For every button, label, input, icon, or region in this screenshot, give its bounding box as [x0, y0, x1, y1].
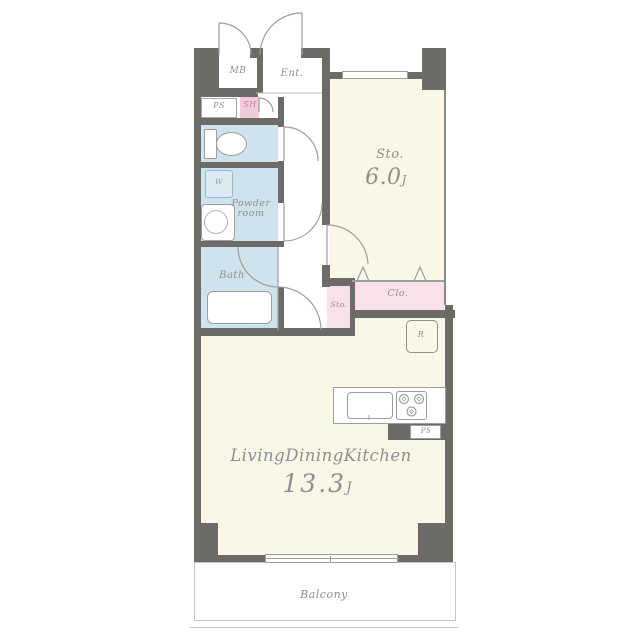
powder-room-label: Powder room: [231, 199, 270, 220]
storage-main-label: Sto.: [376, 148, 404, 162]
wall: [257, 48, 263, 93]
powder-door-arc: [284, 203, 322, 241]
balcony-outer-line: [190, 627, 458, 629]
wall-pillar: [422, 48, 446, 90]
wall: [278, 97, 284, 127]
closet-label: Clo.: [388, 289, 409, 299]
storage-size-value: 6.0: [365, 165, 402, 190]
washer-label: W: [215, 178, 223, 186]
wall: [194, 118, 280, 125]
wall: [194, 241, 280, 247]
wall: [278, 241, 284, 247]
bathtub: [207, 291, 272, 324]
sink-basin: [204, 210, 228, 234]
storage-small-label: Sto.: [331, 301, 348, 309]
mb-label: MB: [230, 67, 247, 77]
wall: [194, 328, 355, 336]
wall: [214, 88, 258, 97]
pipe-shaft-label: PS: [213, 102, 225, 111]
bath-label: Bath: [219, 270, 245, 281]
shoe-box-label: SH: [243, 101, 256, 110]
storage-main-size: 6.0J: [365, 166, 407, 190]
closet-front-line: [352, 280, 444, 282]
wall: [350, 286, 355, 328]
powder-line1: Powder: [231, 198, 270, 209]
ldk-size-value: 13.3: [282, 469, 346, 498]
window-center-tick: [330, 556, 331, 562]
entrance-label: Ent.: [281, 68, 304, 79]
mb-door-arc: [219, 23, 251, 55]
powder-line2: room: [237, 208, 264, 219]
wall: [278, 161, 284, 203]
vanity-sink: [201, 204, 235, 241]
stove: [396, 391, 427, 420]
window-mid-line: [266, 558, 399, 559]
floor-plan: MB Ent. PS SH W Powder room Bath Sto. 6.…: [0, 0, 640, 640]
wall: [330, 72, 342, 79]
refrigerator-label: R: [418, 331, 425, 340]
ldk-size: 13.3J: [282, 470, 353, 498]
window-balcony-sliding: [265, 554, 398, 563]
wall: [322, 278, 355, 286]
storage-size-unit: J: [402, 173, 407, 187]
hall-ldk-door-arc: [278, 287, 321, 330]
wall: [322, 48, 330, 225]
toilet-door-arc: [284, 127, 318, 161]
pipe-shaft-kitchen-label: PS: [421, 428, 432, 436]
toilet-bowl: [216, 132, 247, 156]
ldk-label: LivingDiningKitchen: [230, 447, 412, 465]
balcony-label: Balcony: [300, 589, 348, 601]
ldk-size-unit: J: [346, 480, 354, 496]
wall: [278, 287, 284, 328]
kitchen-sink: [347, 392, 393, 419]
wall: [408, 72, 422, 79]
entrance-door-arc: [260, 13, 302, 55]
window-top: [342, 71, 408, 79]
wall: [194, 162, 280, 168]
wall: [444, 90, 446, 305]
wall: [352, 310, 455, 318]
shoebox-door-arc: [259, 98, 273, 112]
